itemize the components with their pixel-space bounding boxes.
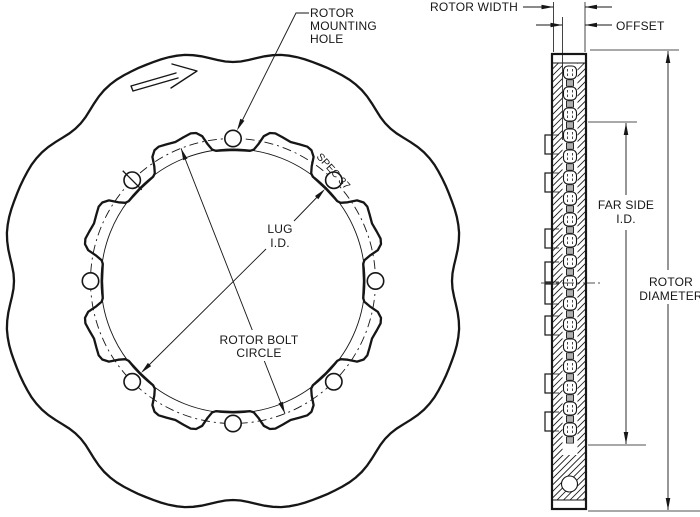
- hatch-line: [522, 443, 588, 509]
- hatch-line: [230, 151, 589, 510]
- hatch-line: [126, 47, 589, 510]
- hatch-line: [204, 125, 589, 510]
- farside-arrow-down: [624, 432, 629, 444]
- vent-hole: [564, 192, 577, 205]
- hatch-line: [399, 320, 589, 510]
- rotor-mounting-hole: [367, 273, 383, 289]
- hatch-line: [295, 216, 589, 510]
- vent-hole: [564, 129, 577, 142]
- vent-neck: [567, 185, 574, 191]
- width-arrow-right: [585, 5, 597, 10]
- label-rotor-mounting-hole-1: ROTOR: [310, 6, 354, 20]
- vent-neck: [567, 395, 574, 401]
- bolt-circle-arrow-upper: [181, 148, 188, 160]
- vent-neck: [567, 416, 574, 422]
- section-hole: [562, 476, 578, 492]
- vent-hole: [564, 255, 577, 268]
- hatch-line: [106, 27, 588, 509]
- rotor-mounting-hole: [326, 374, 342, 390]
- vent-neck: [567, 227, 574, 233]
- farside-arrow-up: [624, 123, 629, 135]
- rotor-mounting-hole: [124, 374, 140, 390]
- vent-neck: [567, 437, 574, 443]
- vent-neck: [567, 311, 574, 317]
- vent-neck: [567, 374, 574, 380]
- brake-rotor-technical-drawing: ROTOR MOUNTING HOLE LUG I.D. ROTOR BOLT …: [0, 0, 700, 517]
- section-hatching: [106, 27, 588, 509]
- vent-neck: [567, 290, 574, 296]
- vent-neck: [567, 206, 574, 212]
- vent-hole: [564, 276, 577, 289]
- width-arrow-left: [542, 5, 554, 10]
- diameter-arrow-up: [666, 51, 671, 63]
- hatch-line: [282, 203, 589, 510]
- hatch-line: [269, 190, 589, 510]
- vent-neck: [567, 248, 574, 254]
- hatch-line: [197, 118, 588, 509]
- bolt-circle-arrow-lower: [278, 402, 285, 414]
- hatch-line: [373, 294, 589, 510]
- vent-neck: [567, 353, 574, 359]
- vent-hole: [564, 318, 577, 331]
- label-rotor-mounting-hole-3: HOLE: [310, 32, 343, 46]
- label-rotor-width: ROTOR WIDTH: [430, 0, 518, 14]
- vent-hole: [564, 171, 577, 184]
- label-rotor-diameter-2: DIAMETER: [639, 289, 700, 303]
- offset-arrow-right: [585, 23, 597, 28]
- vent-hole: [564, 381, 577, 394]
- hatch-line: [275, 196, 588, 509]
- diameter-arrow-down: [666, 498, 671, 510]
- section-view: [106, 2, 700, 511]
- hatch-line: [191, 112, 589, 510]
- hatch-line: [145, 66, 588, 509]
- label-rotor-bolt-circle-2: CIRCLE: [236, 346, 281, 360]
- vent-hole: [564, 108, 577, 121]
- hatch-line: [119, 40, 588, 509]
- hatch-line: [158, 79, 588, 509]
- hatch-line: [360, 281, 589, 510]
- hatch-line: [132, 53, 588, 509]
- hatch-line: [210, 131, 588, 509]
- hatch-line: [152, 73, 589, 510]
- vent-neck: [567, 143, 574, 149]
- vent-neck: [567, 269, 574, 275]
- rim-cap-top: [553, 55, 585, 63]
- hatch-line: [262, 183, 588, 509]
- vent-hole: [564, 234, 577, 247]
- label-rotor-mounting-hole-2: MOUNTING: [310, 19, 377, 33]
- vent-hole: [564, 87, 577, 100]
- vent-hole: [564, 150, 577, 163]
- hatch-line: [223, 144, 588, 509]
- front-view: [7, 13, 459, 507]
- offset-arrow-left: [551, 23, 563, 28]
- vent-hole: [564, 66, 577, 79]
- hatch-line: [178, 99, 589, 510]
- vent-hole: [564, 402, 577, 415]
- rotor-mounting-hole: [82, 273, 98, 289]
- vent-neck: [567, 101, 574, 107]
- hatch-line: [217, 138, 589, 510]
- vent-hole: [564, 297, 577, 310]
- vent-hole: [564, 213, 577, 226]
- hatch-line: [184, 105, 588, 509]
- label-lug-id-1: LUG: [267, 222, 292, 236]
- label-far-side-id-1: FAR SIDE: [598, 198, 654, 212]
- hatch-line: [113, 34, 589, 510]
- label-offset: OFFSET: [616, 19, 665, 33]
- label-lug-id-2: I.D.: [270, 236, 289, 250]
- hatch-line: [386, 307, 589, 510]
- rim-cap-bottom: [553, 500, 585, 508]
- vent-neck: [567, 332, 574, 338]
- vent-neck: [567, 80, 574, 86]
- hatch-line: [288, 209, 588, 509]
- mounting-hole-leader: [239, 13, 309, 127]
- label-far-side-id-2: I.D.: [616, 212, 635, 226]
- mounting-hole-arrow: [237, 119, 244, 131]
- rotor-mounting-hole: [225, 130, 241, 146]
- hatch-line: [379, 300, 588, 509]
- hatch-line: [405, 326, 588, 509]
- rotor-mounting-hole: [225, 415, 241, 431]
- vent-neck: [567, 164, 574, 170]
- vent-hole: [564, 423, 577, 436]
- vent-hole: [564, 360, 577, 373]
- vent-neck: [567, 122, 574, 128]
- label-rotor-bolt-circle-1: ROTOR BOLT: [220, 333, 299, 347]
- label-rotor-diameter-1: ROTOR: [649, 275, 693, 289]
- bolt-circle-dimension-line: [181, 148, 285, 413]
- vent-hole: [564, 339, 577, 352]
